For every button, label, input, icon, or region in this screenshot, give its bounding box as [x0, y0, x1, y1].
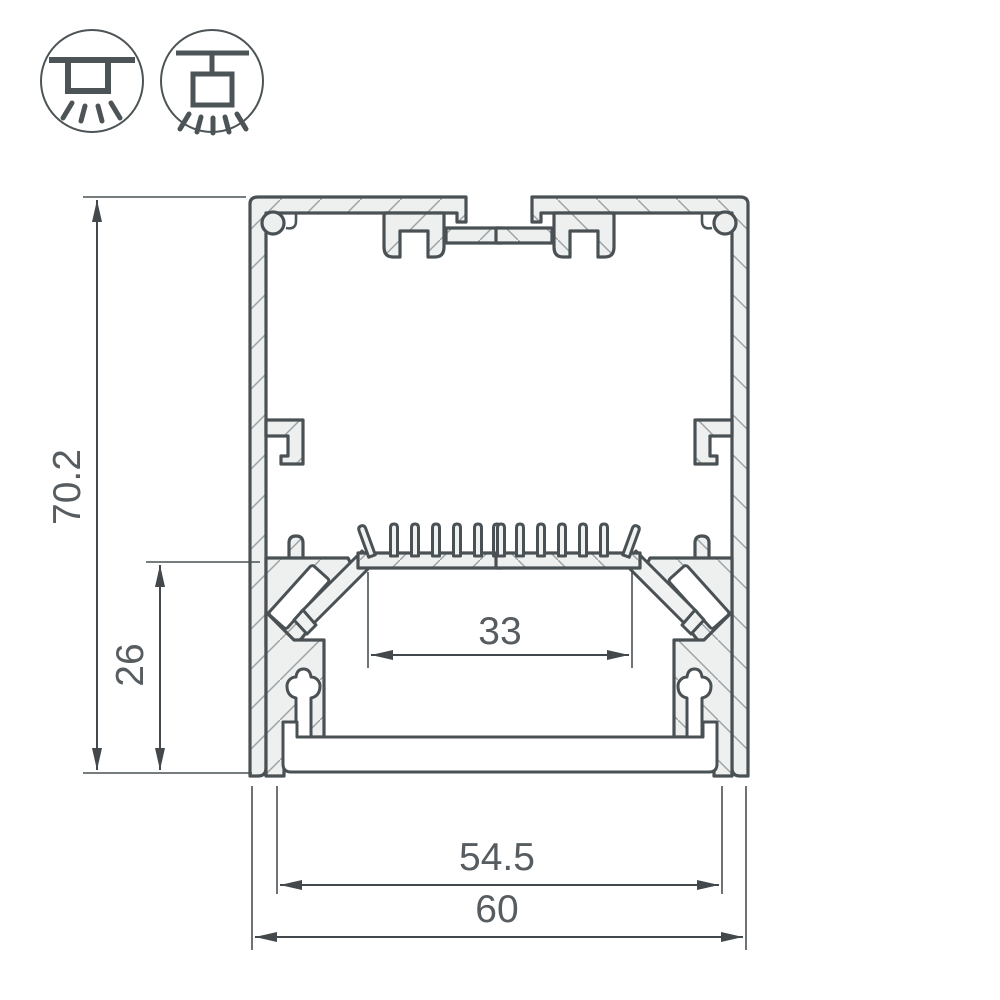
surface-mount-icon [41, 30, 143, 132]
mount-type-legend [41, 30, 263, 133]
profile-right-half [496, 197, 748, 776]
dimension-label: 26 [109, 643, 152, 686]
dimension-led-platform-width: 33 [368, 572, 632, 668]
technical-drawing-page: 70.2 26 33 54.5 60 [0, 0, 1000, 1000]
dimension-label: 54.5 [459, 836, 535, 879]
light-rays [180, 114, 246, 133]
dimension-label: 70.2 [46, 449, 89, 525]
profile-body [250, 197, 748, 776]
dimension-inner-height: 26 [109, 562, 260, 770]
dimension-diffuser-width: 54.5 [277, 786, 722, 894]
pendant-mount-icon [161, 30, 263, 133]
diffuser-plate [283, 722, 717, 772]
dimension-label: 60 [475, 888, 518, 931]
lamp-body [68, 60, 108, 91]
profile-cross-section-drawing: 70.2 26 33 54.5 60 [0, 0, 1000, 1000]
profile-left-half [250, 197, 502, 776]
icon-circle [41, 30, 143, 132]
dimension-label: 33 [478, 610, 521, 653]
light-rays [63, 103, 120, 121]
lamp-body [193, 74, 232, 105]
